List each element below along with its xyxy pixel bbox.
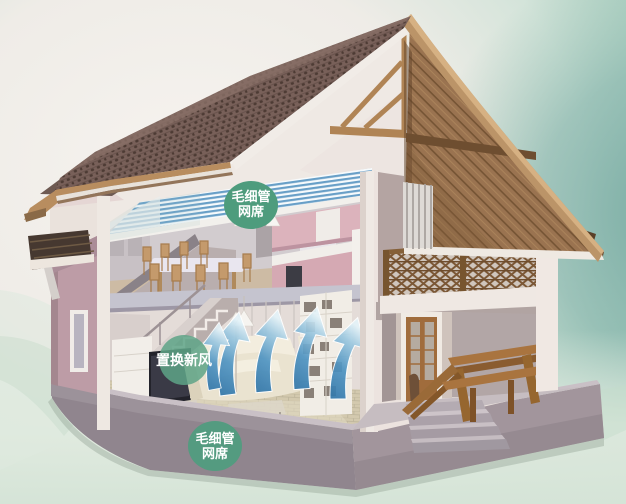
svg-text:网席: 网席: [202, 446, 228, 461]
svg-text:网席: 网席: [238, 204, 264, 219]
svg-text:毛细管: 毛细管: [195, 431, 234, 446]
svg-text:毛细管: 毛细管: [231, 189, 270, 204]
svg-text:置换新风: 置换新风: [156, 352, 212, 368]
